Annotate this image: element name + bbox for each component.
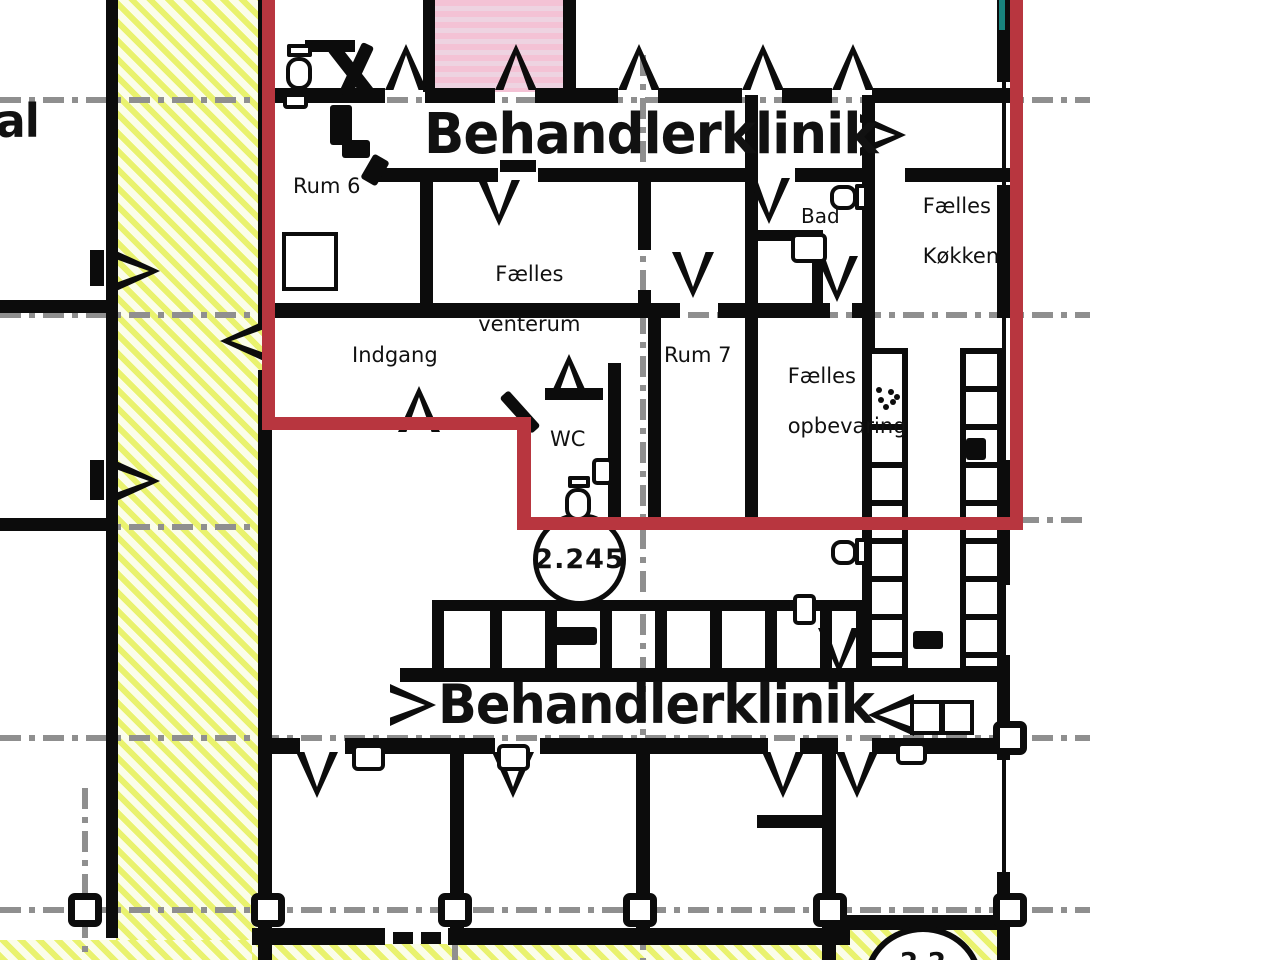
shelf-unit-icon (960, 348, 1003, 672)
room-label-koekken: Fælles Køkken (896, 169, 999, 294)
wall (0, 518, 106, 531)
room-label-venterum-line1: Fælles (495, 262, 563, 286)
partial-text-left: al (0, 94, 39, 148)
door-swing-icon (832, 44, 874, 90)
door-swing-icon (478, 180, 520, 226)
window-strip-icon (1002, 760, 1006, 872)
door-swing-icon (385, 44, 427, 90)
door-swing-icon (390, 684, 436, 726)
clinic-boundary (262, 0, 275, 430)
hatched-zone (252, 944, 852, 960)
wall (393, 932, 413, 944)
area-number-partial-text: 2.2 (900, 948, 946, 960)
wall (658, 88, 742, 103)
room-label-opbevaring-line1: Fælles (788, 364, 856, 388)
fixture-icon (831, 540, 857, 565)
wall (432, 600, 444, 668)
room-label-rum7: Rum 7 (664, 343, 731, 367)
column-marker (993, 721, 1027, 755)
wall (0, 300, 106, 313)
door-swing-icon (672, 252, 714, 298)
fixture-icon (896, 742, 927, 765)
gridline-vertical (82, 788, 88, 960)
wall (372, 168, 498, 182)
wall (600, 600, 612, 668)
wall-detail (913, 631, 943, 649)
column-marker (993, 893, 1027, 927)
wall (423, 0, 435, 92)
wall (638, 168, 651, 250)
wall (272, 738, 300, 754)
wall (655, 600, 667, 668)
fixture-icon (568, 476, 590, 488)
column-marker (438, 893, 472, 927)
teal-accent-line (999, 0, 1005, 30)
wall (648, 318, 661, 528)
gridline-horizontal (1018, 517, 1088, 523)
clinic-title-bottom: Behandlerklinik (438, 674, 874, 737)
wall (795, 168, 862, 182)
fixture-icon (283, 93, 308, 109)
room-label-bad: Bad (801, 204, 840, 228)
hatched-zone (0, 940, 266, 960)
wall (258, 370, 272, 960)
wall (421, 932, 441, 944)
column-marker (251, 893, 285, 927)
clinic-title-top: Behandlerklinik (424, 102, 878, 167)
fixture-icon (286, 57, 312, 90)
door-swing-icon (618, 44, 660, 90)
room-label-indgang: Indgang (352, 343, 438, 367)
wall (710, 600, 722, 668)
wall (535, 88, 618, 103)
wall-detail (545, 627, 597, 645)
room-label-opbevaring: Fælles opbevaring (761, 339, 907, 464)
column-marker (813, 893, 847, 927)
wall (448, 928, 850, 945)
door-swing-icon (868, 694, 914, 736)
fixture-icon (793, 594, 816, 625)
wall (765, 600, 777, 668)
door-swing-icon (742, 44, 784, 90)
wall (90, 460, 104, 500)
wall (540, 738, 768, 754)
wall (757, 815, 823, 828)
wall (872, 88, 1010, 103)
door-swing-icon (762, 752, 804, 798)
room-label-koekken-line1: Fælles (923, 194, 991, 218)
table-icon (282, 232, 338, 291)
fixture-icon (352, 744, 385, 771)
wall (252, 928, 385, 945)
column-marker (68, 893, 102, 927)
room-label-rum6: Rum 6 (293, 174, 360, 198)
clinic-boundary (1010, 0, 1023, 530)
area-number-text: 2.245 (534, 544, 624, 575)
fixture-icon (910, 700, 943, 735)
shelf-box-icon (966, 438, 986, 460)
room-label-wc: WC (550, 427, 585, 451)
fixture-icon (592, 458, 613, 485)
fixture-icon (497, 744, 530, 771)
clinic-boundary (517, 517, 1023, 530)
wall (420, 168, 433, 317)
wall (872, 738, 1010, 754)
room-label-venterum: Fælles venterum (440, 237, 592, 362)
room-label-venterum-line2: venterum (478, 312, 580, 336)
fixture-icon (941, 700, 974, 735)
fixture-icon (287, 44, 312, 57)
wall (490, 600, 502, 668)
wall (608, 363, 621, 530)
wall-detail (330, 105, 352, 145)
wall (563, 0, 576, 92)
fixture-icon (791, 233, 827, 263)
room-label-koekken-line2: Køkken (923, 244, 999, 268)
gridline-vertical (452, 945, 458, 960)
wall-detail (342, 140, 370, 158)
clinic-boundary (517, 417, 531, 530)
door-swing-icon (296, 752, 338, 798)
wall (425, 88, 495, 103)
clinic-boundary (262, 417, 530, 430)
room-label-opbevaring-line2: opbevaring (788, 414, 907, 438)
wall (782, 88, 832, 103)
wall (90, 250, 104, 286)
pink-room-fill (433, 0, 565, 92)
floor-plan-canvas: al Behandlerklinik Behandlerklinik Rum 6… (0, 0, 1280, 960)
gridline-horizontal (0, 907, 1090, 913)
column-marker (623, 893, 657, 927)
door-swing-icon (836, 752, 878, 798)
